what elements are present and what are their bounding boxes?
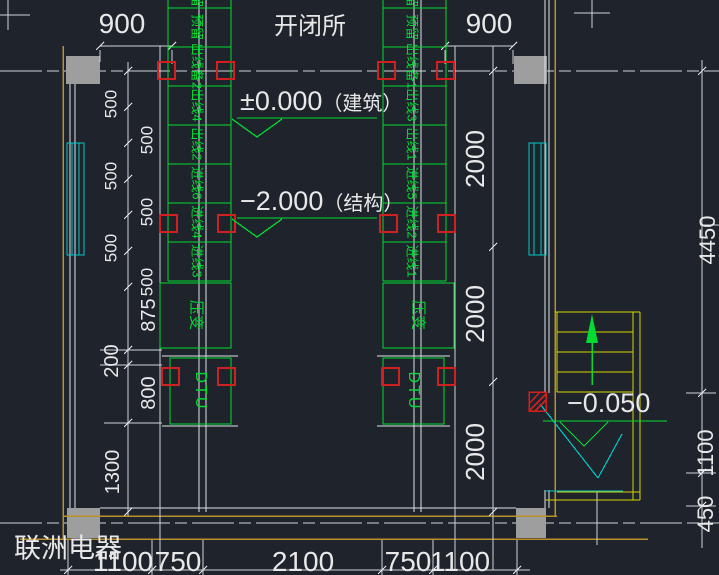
stairs-up-arrow-icon	[586, 314, 598, 385]
dtu-label-right: DTU	[405, 372, 421, 411]
panel-cell-left-1: 预留	[191, 14, 204, 40]
pt-label-left: 压变	[189, 300, 204, 330]
dim-right-1: 2000	[462, 285, 488, 343]
elevation-structure-label: （结构）	[323, 193, 403, 215]
dim-left-1: 500	[139, 126, 156, 154]
panel-cell-left-7: 进线3	[191, 244, 204, 277]
panel-cell-right-5: 进线5	[406, 166, 419, 199]
panel-cell-right-7: 进线1	[406, 244, 419, 277]
dim-far-right-1: 1100	[695, 429, 717, 476]
dim-left-3: 500	[139, 198, 156, 226]
dim-left-8: 800	[139, 376, 159, 409]
panel-cell-left-6: 进线4	[191, 205, 204, 238]
dim-right-2: 2000	[462, 423, 488, 481]
dim-bottom-1: 750	[155, 548, 202, 575]
dim-bottom-2: 2100	[272, 548, 334, 575]
dim-bottom-4: 1100	[430, 548, 490, 575]
pt-label-right: 压变	[411, 300, 426, 330]
panel-cell-right-0: 预留	[406, 0, 419, 7]
dim-right-0: 2000	[462, 130, 488, 188]
dim-top-1: 900	[466, 10, 513, 38]
dim-bottom-3: 750	[385, 548, 432, 575]
elevation-building: ±0.000（建筑）	[240, 88, 402, 115]
dim-left-9: 1300	[103, 450, 123, 495]
dim-top-0: 900	[99, 10, 146, 38]
dim-far-right-2: 450	[695, 496, 717, 533]
elevation-structure: −2.000（结构）	[240, 188, 403, 215]
dim-left-5: 500	[139, 268, 156, 296]
dtu-label-left: DTU	[192, 372, 208, 411]
window-right	[529, 143, 546, 255]
panel-cell-left-2: 出线备2	[191, 43, 204, 89]
elevation-structure-value: −2.000	[240, 186, 323, 216]
dim-bottom-0: 1100	[93, 548, 153, 575]
column-bottom-right	[516, 508, 546, 538]
elevation-building-value: ±0.000	[240, 86, 322, 116]
column-top-left	[66, 56, 100, 84]
panel-cell-left-4: 出线2	[191, 127, 204, 160]
dim-left-0: 500	[103, 90, 120, 118]
panel-cell-right-2: 出线备1	[406, 43, 419, 89]
panel-cell-right-6: 进线2	[406, 205, 419, 238]
panel-cell-right-4: 出线1	[406, 127, 419, 160]
panel-cell-left-3: 出线4	[191, 88, 204, 121]
column-top-right	[514, 56, 547, 84]
panel-cell-left-0: 预留	[191, 0, 204, 7]
elevation-triangle-structure-icon	[232, 219, 282, 237]
plan-title: 开闭所	[274, 15, 346, 39]
dim-left-6: 875	[139, 298, 159, 331]
panel-cell-right-1: 预留	[406, 14, 419, 40]
busbar-lines	[199, 0, 421, 512]
panel-cell-left-5: 进线6	[191, 166, 204, 199]
dim-left-4: 500	[103, 234, 120, 262]
elevation-stair: −0.050	[567, 390, 650, 417]
dim-far-right-0: 4450	[697, 216, 719, 265]
elevation-triangle-building-icon	[232, 119, 282, 137]
dim-left-7: 200	[102, 344, 122, 377]
panel-cell-right-3: 出线3	[406, 88, 419, 121]
dim-left-2: 500	[103, 162, 120, 190]
elevation-building-label: （建筑）	[322, 93, 402, 115]
cad-drawing-canvas: 开闭所 联洲电器 ±0.000（建筑） −2.000（结构） −0.050 90…	[0, 0, 719, 575]
elevation-triangle-stair-icon	[560, 422, 608, 446]
